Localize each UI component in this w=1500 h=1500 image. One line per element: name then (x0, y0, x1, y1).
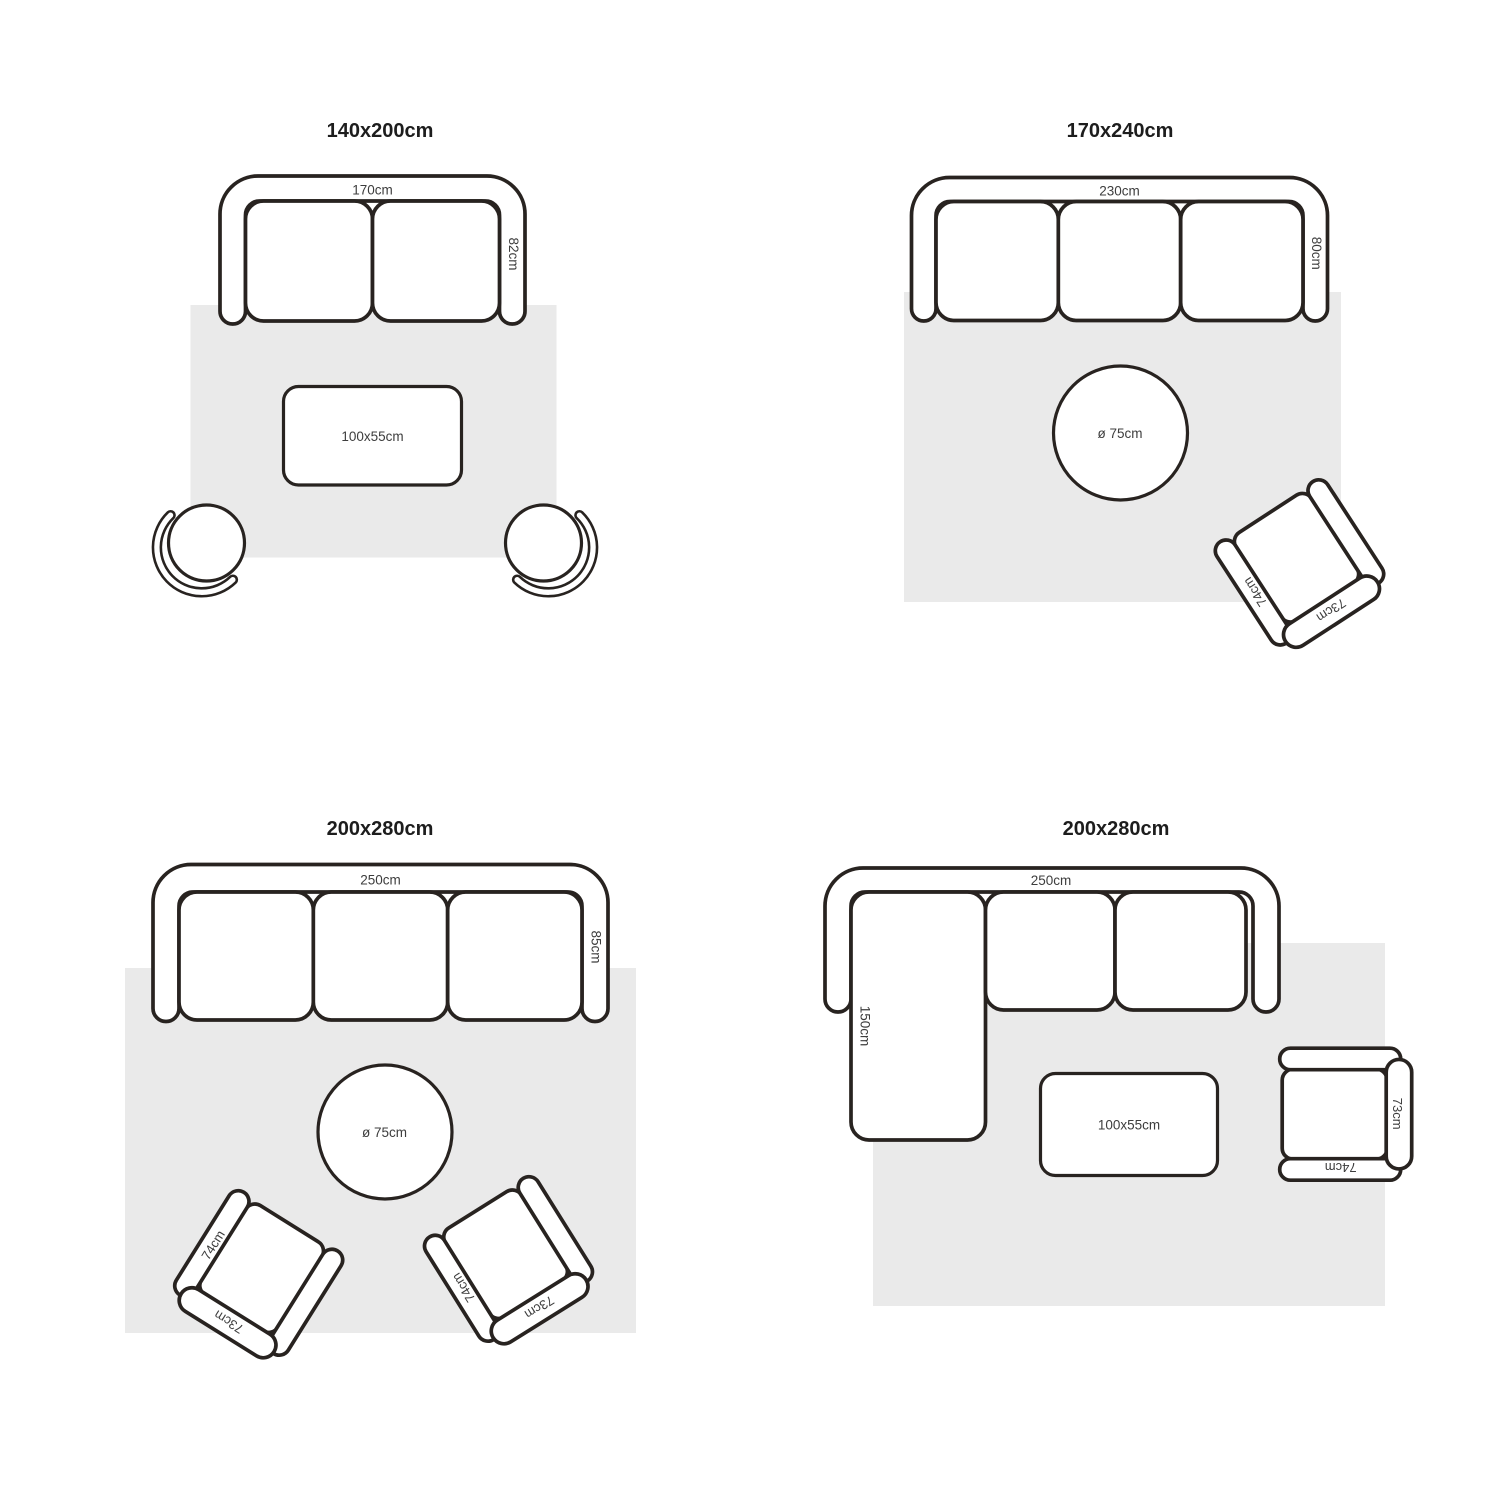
svg-text:200x280cm: 200x280cm (327, 818, 434, 840)
svg-text:74cm: 74cm (1325, 1160, 1357, 1175)
svg-text:230cm: 230cm (1099, 184, 1140, 199)
svg-text:170x240cm: 170x240cm (1067, 120, 1174, 142)
svg-text:100x55cm: 100x55cm (1098, 1118, 1160, 1133)
svg-text:100x55cm: 100x55cm (341, 429, 403, 444)
svg-text:80cm: 80cm (1309, 237, 1324, 270)
svg-text:250cm: 250cm (360, 872, 401, 887)
svg-text:73cm: 73cm (1390, 1098, 1405, 1130)
svg-text:140x200cm: 140x200cm (327, 120, 434, 142)
svg-text:200x280cm: 200x280cm (1063, 818, 1170, 840)
svg-text:85cm: 85cm (589, 930, 604, 963)
svg-text:150cm: 150cm (858, 1006, 873, 1047)
svg-text:250cm: 250cm (1031, 873, 1072, 888)
svg-text:ø 75cm: ø 75cm (1097, 426, 1142, 441)
svg-text:82cm: 82cm (506, 237, 521, 270)
svg-text:170cm: 170cm (352, 183, 393, 198)
svg-text:ø 75cm: ø 75cm (362, 1125, 407, 1140)
